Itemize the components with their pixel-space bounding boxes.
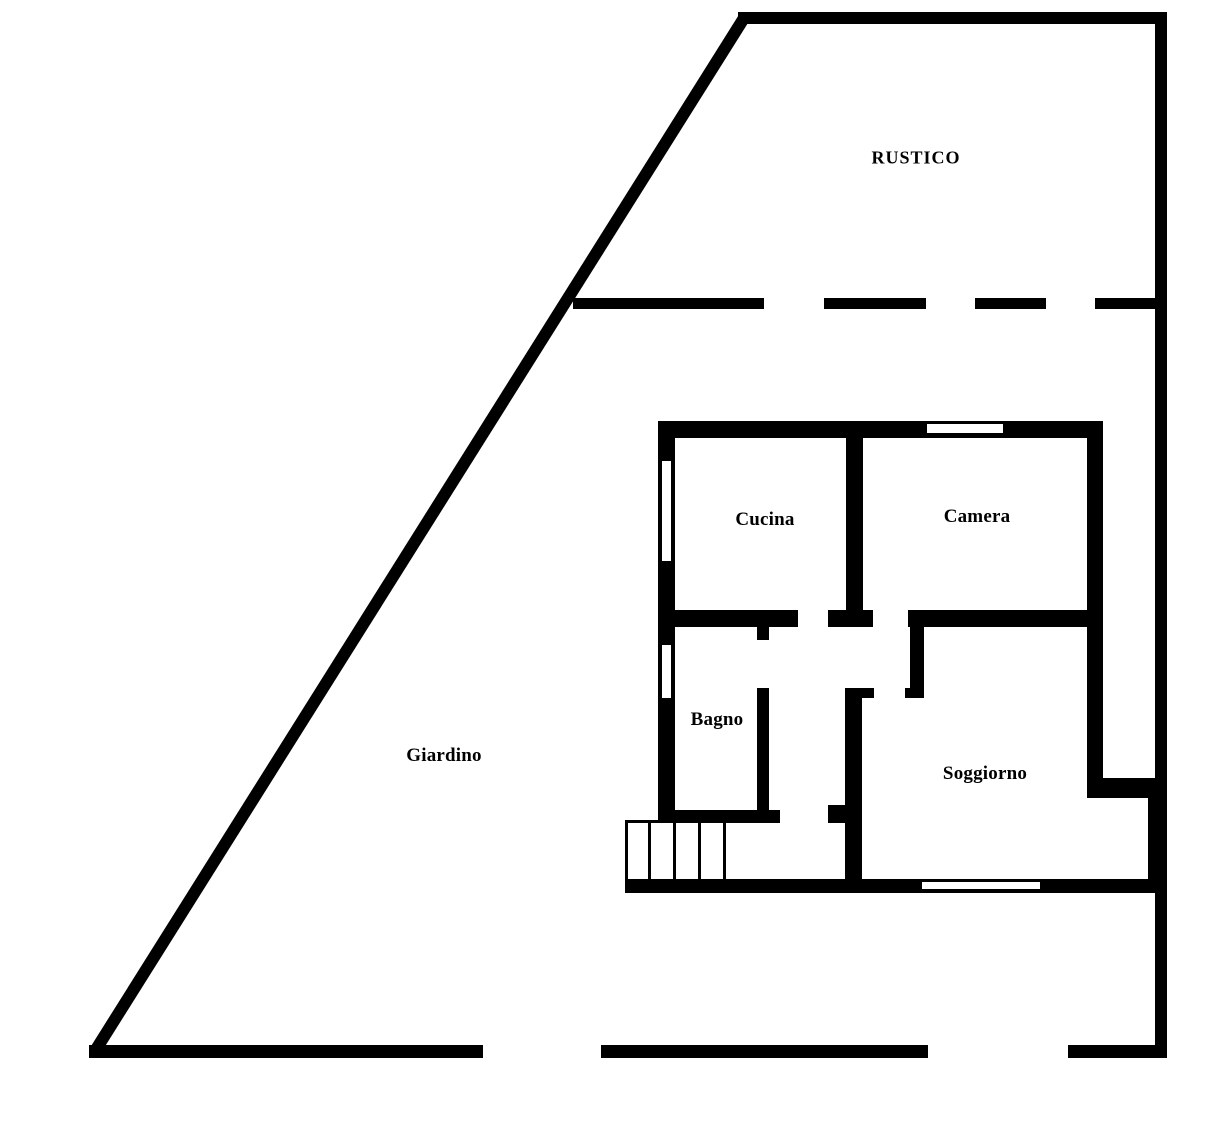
stairs-tread-1 [648, 822, 651, 879]
window-cucina-left [662, 461, 671, 561]
floor-plan: RUSTICO Cucina Camera Bagno Soggiorno Gi… [0, 0, 1232, 1123]
room-label-camera: Camera [944, 506, 1011, 528]
central-wall [845, 688, 862, 879]
bagno-bottom-wall [658, 810, 780, 823]
stairs-left-edge [625, 820, 628, 886]
window-bagno-left [662, 645, 671, 698]
room-label-giardino: Giardino [406, 745, 482, 767]
boundary-diagonal [90, 15, 749, 1054]
divider-dash-1 [824, 298, 926, 309]
boundary-bottom-right [1068, 1045, 1167, 1058]
room-label-cucina: Cucina [735, 509, 794, 531]
house-notch-right-wall [1148, 778, 1166, 892]
boundary-top [738, 12, 1166, 24]
cucina-bottom-wall [675, 610, 798, 627]
window-soggiorno-bottom [922, 882, 1040, 889]
divider-dash-solid [573, 298, 764, 309]
room-label-bagno: Bagno [691, 709, 744, 731]
stairs-tread-3 [698, 822, 701, 879]
stairs-tread-4 [723, 822, 726, 879]
window-camera-top [927, 424, 1003, 433]
house-bottom-wall [625, 879, 1166, 893]
bagno-right-wall-lower [757, 688, 769, 810]
divider-dash-3 [1095, 298, 1160, 309]
divider-dash-2 [975, 298, 1046, 309]
bagno-right-wall-upper [757, 627, 769, 640]
room-label-soggiorno: Soggiorno [943, 763, 1027, 785]
stairs-top-edge [625, 820, 661, 823]
boundary-right [1155, 12, 1167, 1058]
camera-bottom-wall [908, 610, 1087, 627]
stairs-tread-2 [673, 822, 676, 879]
room-label-rustico: RUSTICO [871, 148, 960, 169]
corridor-cross-stub [828, 610, 873, 627]
cucina-camera-divider [846, 438, 863, 627]
central-wall-stub [862, 688, 874, 698]
stairs-landing-stub [828, 805, 845, 823]
house-top-wall [658, 421, 1102, 438]
soggiorno-left-foot [905, 688, 924, 698]
house-right-wall [1087, 421, 1103, 798]
boundary-bottom-middle [601, 1045, 928, 1058]
boundary-bottom-left [89, 1045, 483, 1058]
